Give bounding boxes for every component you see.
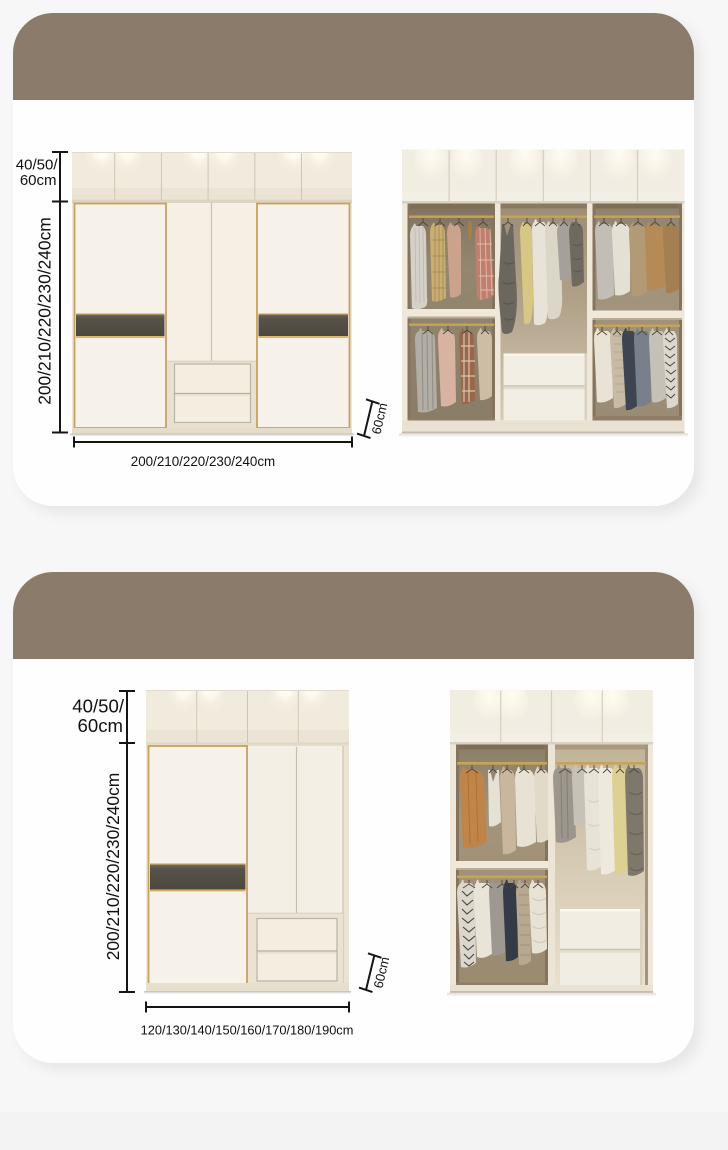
- svg-text:200/210/220/230/240cm: 200/210/220/230/240cm: [131, 454, 275, 469]
- svg-text:60cm: 60cm: [20, 172, 57, 189]
- svg-text:60cm: 60cm: [78, 715, 123, 736]
- svg-text:40/50/: 40/50/: [72, 696, 125, 717]
- svg-text:200/210/220/230/240cm: 200/210/220/230/240cm: [103, 773, 123, 961]
- svg-text:200/210/220/230/240cm: 200/210/220/230/240cm: [35, 217, 55, 405]
- svg-text:120/130/140/150/160/170/180/19: 120/130/140/150/160/170/180/190cm: [141, 1023, 354, 1038]
- svg-text:40/50/: 40/50/: [16, 157, 59, 174]
